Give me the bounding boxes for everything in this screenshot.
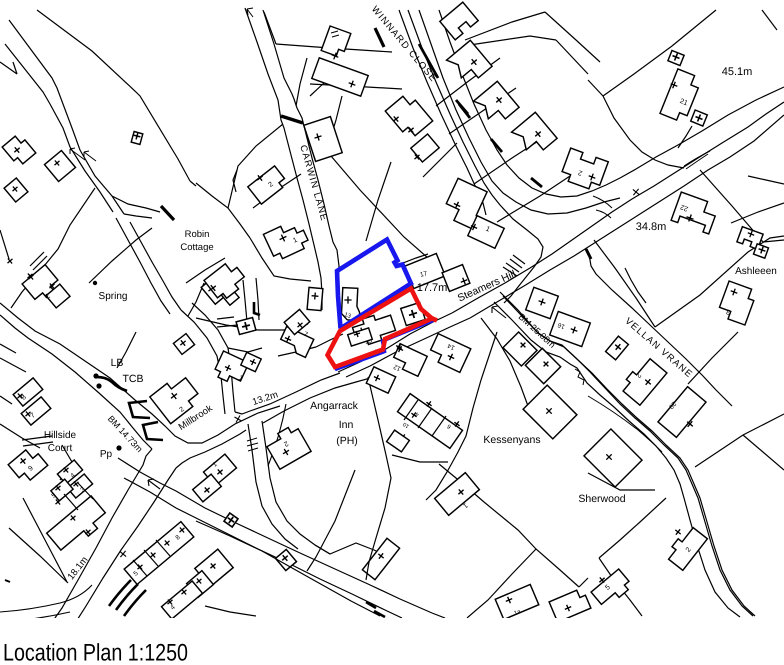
svg-text:Inn: Inn [339, 419, 354, 431]
svg-text:Angarrack: Angarrack [310, 400, 359, 412]
svg-text:LB: LB [111, 357, 124, 369]
svg-text:TCB: TCB [123, 373, 144, 385]
svg-text:Kessenyans: Kessenyans [483, 434, 540, 446]
svg-text:45.1m: 45.1m [722, 66, 753, 78]
svg-text:Pp: Pp [100, 449, 113, 460]
svg-text:Spring: Spring [99, 291, 128, 302]
svg-text:Cottage: Cottage [180, 242, 213, 253]
svg-text:Ashleeen: Ashleeen [735, 266, 777, 277]
svg-text:Location Plan 1:1250: Location Plan 1:1250 [3, 640, 188, 665]
svg-text:(PH): (PH) [336, 435, 358, 447]
svg-text:34.8m: 34.8m [636, 221, 667, 233]
svg-text:Hillside: Hillside [44, 430, 77, 441]
svg-text:Court: Court [48, 443, 73, 454]
svg-text:Robin: Robin [185, 229, 210, 240]
svg-text:Sherwood: Sherwood [578, 493, 625, 505]
svg-text:17.7m: 17.7m [417, 282, 448, 294]
